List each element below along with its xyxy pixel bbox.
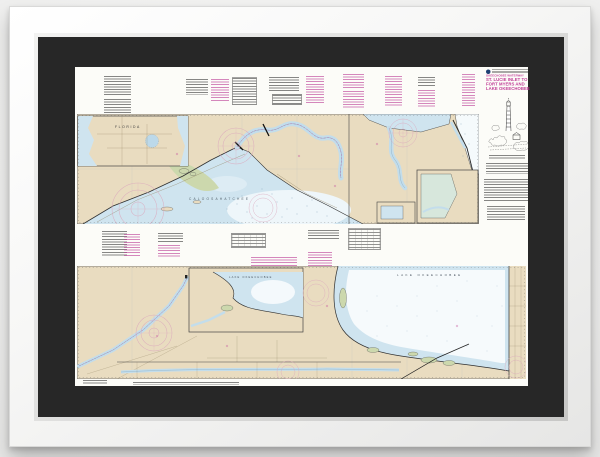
note-block	[83, 380, 107, 384]
note-block	[133, 382, 239, 385]
lighthouse-drawing	[486, 97, 530, 153]
note-block	[308, 230, 339, 240]
title-header-lines	[492, 70, 530, 74]
lake-inset-label: LAKE OKEECHOBEE	[229, 275, 273, 279]
note-block	[211, 79, 229, 101]
note-block	[104, 76, 131, 96]
note-block	[124, 234, 140, 257]
note-block	[343, 91, 364, 108]
picture-frame: OKEECHOBEE WATERWAY ST. LUCIE INLET TO F…	[9, 6, 591, 447]
note-block	[343, 74, 364, 88]
note-block	[484, 179, 529, 201]
note-block	[272, 94, 302, 105]
chart-title-line: LAKE OKEECHOBEE	[486, 87, 530, 92]
note-block	[462, 74, 475, 107]
compass-rose	[389, 119, 417, 147]
upper-map-band: FLORIDA	[77, 114, 479, 224]
note-table	[231, 233, 266, 248]
compass-rose	[136, 315, 172, 351]
note-block	[232, 77, 257, 105]
note-block	[487, 206, 525, 220]
note-block	[418, 90, 435, 108]
note-block	[158, 245, 180, 257]
lake-label: LAKE OKEECHOBEE	[397, 273, 463, 277]
noaa-logo-icon	[486, 69, 491, 74]
lower-map-band: LAKE OKEECHOBEE	[77, 266, 526, 379]
chart-title-block: OKEECHOBEE WATERWAY ST. LUCIE INLET TO F…	[486, 69, 530, 99]
upper-water-label: CALOOSAHATCHEE	[189, 197, 250, 201]
note-block	[306, 76, 324, 103]
note-block	[251, 257, 297, 266]
state-inset-label: FLORIDA	[115, 125, 141, 129]
lake-inset: LAKE OKEECHOBEE	[189, 268, 303, 332]
note-table	[348, 228, 381, 250]
note-block	[104, 99, 131, 115]
note-block	[489, 155, 525, 160]
note-block	[269, 77, 299, 91]
florida-inset: FLORIDA	[78, 116, 188, 166]
chart-paper: OKEECHOBEE WATERWAY ST. LUCIE INLET TO F…	[75, 67, 528, 386]
note-block	[385, 76, 402, 107]
framed-chart-photo: OKEECHOBEE WATERWAY ST. LUCIE INLET TO F…	[0, 0, 600, 457]
compass-rose	[218, 128, 254, 164]
mat-board: OKEECHOBEE WATERWAY ST. LUCIE INLET TO F…	[38, 37, 564, 417]
note-block	[186, 79, 208, 95]
note-block	[158, 233, 183, 243]
note-block	[486, 163, 528, 174]
frame-lip: OKEECHOBEE WATERWAY ST. LUCIE INLET TO F…	[34, 33, 568, 421]
note-block	[418, 77, 435, 87]
